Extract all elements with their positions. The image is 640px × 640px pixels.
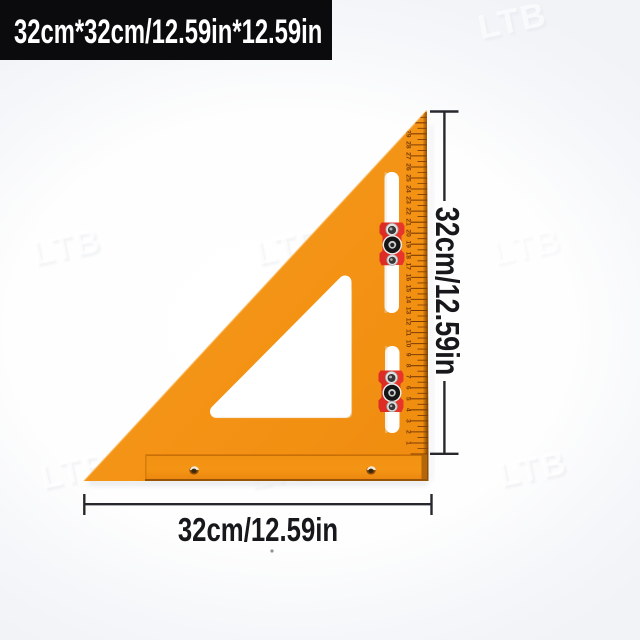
svg-text:28: 28 (405, 141, 412, 149)
svg-text:5: 5 (405, 397, 412, 401)
svg-text:29: 29 (405, 130, 412, 138)
svg-text:26: 26 (405, 163, 412, 171)
svg-text:10: 10 (405, 340, 412, 348)
svg-text:21: 21 (405, 218, 412, 226)
svg-text:2: 2 (405, 430, 412, 434)
svg-text:11: 11 (405, 329, 412, 336)
svg-text:24: 24 (405, 185, 412, 193)
svg-text:16: 16 (405, 274, 412, 282)
svg-text:13: 13 (405, 307, 412, 315)
svg-text:30: 30 (405, 119, 412, 127)
svg-text:12: 12 (405, 318, 412, 326)
svg-text:20: 20 (405, 229, 412, 237)
svg-text:17: 17 (405, 263, 412, 271)
svg-text:7: 7 (405, 375, 412, 379)
svg-text:23: 23 (405, 196, 412, 204)
svg-text:18: 18 (405, 252, 412, 260)
svg-text:22: 22 (405, 207, 412, 215)
svg-text:1: 1 (405, 441, 412, 445)
svg-text:8: 8 (405, 364, 412, 368)
svg-text:6: 6 (405, 386, 412, 390)
svg-text:25: 25 (405, 174, 412, 182)
svg-text:15: 15 (405, 285, 412, 293)
svg-text:27: 27 (405, 152, 412, 160)
svg-text:9: 9 (405, 353, 412, 357)
svg-text:3: 3 (405, 419, 412, 423)
svg-text:19: 19 (405, 240, 412, 248)
svg-text:14: 14 (405, 296, 412, 304)
svg-text:4: 4 (405, 408, 412, 412)
